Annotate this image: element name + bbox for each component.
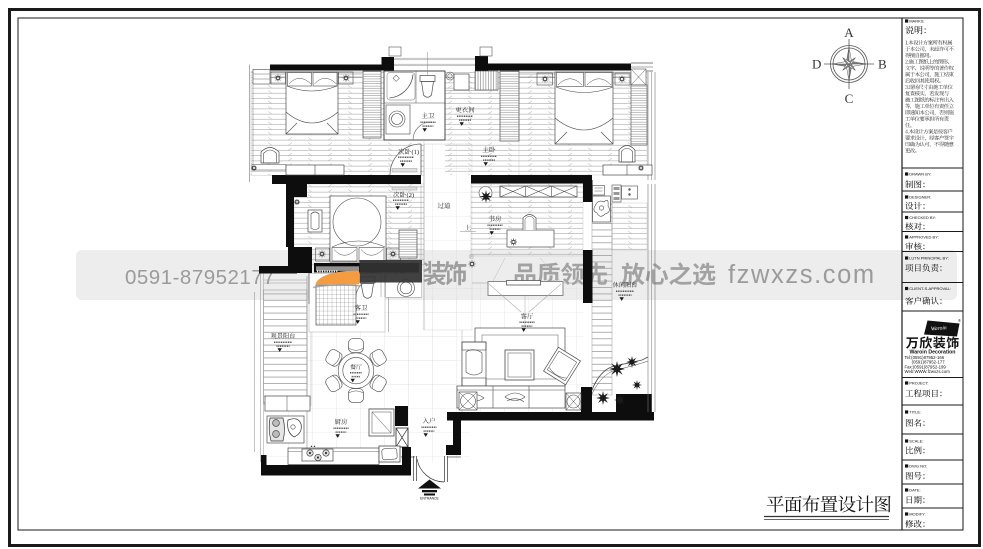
svg-text:C: C [845,91,854,106]
svg-text:▲▲: ▲▲ [310,444,316,448]
svg-text:APPROVED BY:: APPROVED BY: [909,235,939,240]
svg-text:®: ® [469,253,474,261]
svg-text:A: A [844,25,854,40]
svg-text:DESIGNER:: DESIGNER: [909,195,931,200]
svg-text:MODIFY:: MODIFY: [909,512,925,517]
svg-text:TITLE:: TITLE: [909,410,921,415]
svg-text:LUTN PRINCIPAL BY:: LUTN PRINCIPAL BY: [909,256,949,261]
svg-text:DWG NO:: DWG NO: [909,464,927,469]
svg-text:0591-87952177: 0591-87952177 [125,266,275,289]
svg-text:DATE:: DATE: [909,488,920,493]
svg-text:MARKS:: MARKS: [909,19,924,24]
svg-text:Web:WWW.fzwxzs.com: Web:WWW.fzwxzs.com [905,369,951,374]
svg-text:ENTRANCE: ENTRANCE [420,497,439,501]
svg-text:SCALE:: SCALE: [909,439,923,444]
svg-text:(2): (2) [407,192,415,199]
svg-text:CHECKED BY:: CHECKED BY: [909,215,936,220]
svg-text:D: D [812,57,821,72]
svg-text:CLIENT-S-APPROVAL:: CLIENT-S-APPROVAL: [909,286,951,291]
svg-text:DRAWN BY:: DRAWN BY: [909,172,931,177]
svg-text:fzwxzs.com: fzwxzs.com [728,261,876,289]
svg-text:®: ® [958,318,961,323]
svg-text:PROJECT:: PROJECT: [909,381,928,386]
svg-text:(1): (1) [412,149,420,156]
svg-text:B: B [878,57,887,72]
